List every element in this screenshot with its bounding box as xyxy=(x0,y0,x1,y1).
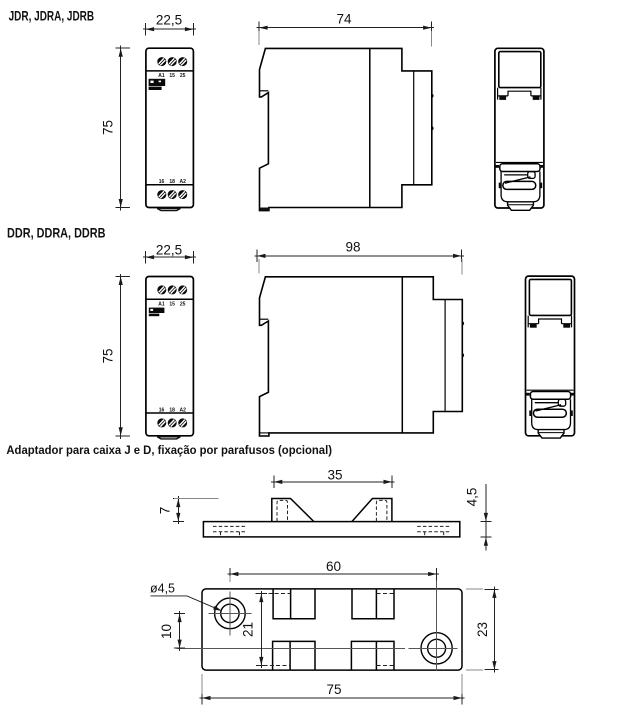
svg-text:Adaptador para caixa J e D, fi: Adaptador para caixa J e D, fixação por … xyxy=(6,443,332,457)
svg-text:15: 15 xyxy=(169,73,175,79)
svg-text:21: 21 xyxy=(241,622,256,637)
svg-text:ø4,5: ø4,5 xyxy=(150,582,175,596)
svg-text:25: 25 xyxy=(180,73,186,79)
svg-text:JDR, JDRA, JDRB: JDR, JDRA, JDRB xyxy=(9,8,95,24)
svg-text:18: 18 xyxy=(169,179,175,185)
svg-text:16: 16 xyxy=(159,179,165,185)
svg-text:75: 75 xyxy=(326,682,341,697)
svg-text:A2: A2 xyxy=(179,179,186,185)
svg-text:10: 10 xyxy=(159,624,174,639)
svg-text:DDR, DDRA, DDRB: DDR, DDRA, DDRB xyxy=(7,224,106,240)
svg-text:60: 60 xyxy=(326,559,341,574)
svg-text:4,5: 4,5 xyxy=(465,488,480,507)
svg-text:74: 74 xyxy=(336,12,352,27)
svg-text:A1: A1 xyxy=(158,73,165,79)
svg-text:35: 35 xyxy=(327,467,342,482)
svg-text:75: 75 xyxy=(101,120,116,135)
svg-text:98: 98 xyxy=(345,240,360,255)
svg-text:7: 7 xyxy=(158,507,173,515)
svg-text:75: 75 xyxy=(101,348,116,363)
svg-text:22,5: 22,5 xyxy=(156,13,182,28)
svg-text:22,5: 22,5 xyxy=(156,242,182,257)
svg-text:23: 23 xyxy=(475,622,490,637)
